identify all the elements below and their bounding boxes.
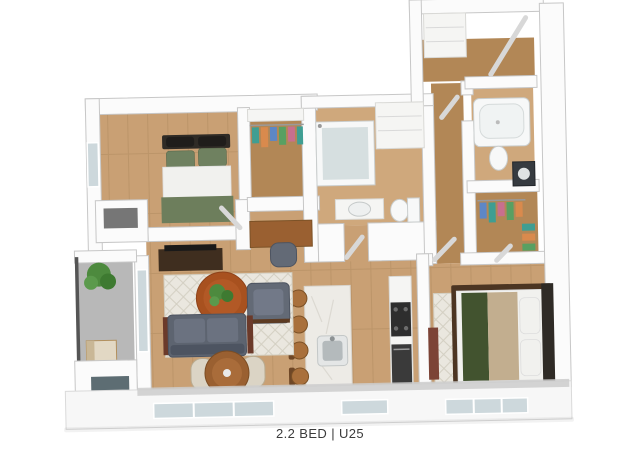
wall-bed1-south — [148, 226, 248, 242]
stove — [391, 302, 412, 336]
bed-2-pillow — [519, 297, 540, 333]
hanging-clothes — [522, 243, 535, 250]
sofa-wood-arm — [247, 315, 254, 353]
hanging-clothes — [522, 223, 535, 230]
wall-bath1-south-a — [318, 223, 345, 262]
hanging-clothes — [515, 202, 522, 217]
facade-window — [342, 400, 388, 415]
bed-2-headboard — [541, 283, 555, 387]
hanging-clothes — [261, 127, 268, 147]
hanging-clothes — [270, 127, 277, 141]
bathtub-basin — [479, 104, 524, 139]
bed-2-green-runner — [461, 293, 489, 382]
sofa-cushion — [207, 318, 238, 343]
vanity-1-sink — [348, 202, 370, 216]
shower-glass — [322, 127, 369, 180]
wall-balcony-top — [74, 250, 136, 263]
media-console — [158, 248, 222, 271]
hanging-clothes — [488, 202, 495, 222]
floorplan-canvas: 2.2 BED | U25 — [0, 0, 640, 453]
tv — [164, 244, 216, 251]
facade-window — [446, 398, 528, 415]
bed-1-dark-pillow — [198, 136, 226, 147]
hanging-clothes — [252, 127, 259, 143]
closet-1-floor — [247, 108, 305, 201]
toilet-2 — [489, 146, 507, 170]
sofa-cushion — [174, 318, 205, 343]
bedroom-1-window — [87, 143, 99, 187]
bar-stool — [291, 368, 308, 385]
sofa — [163, 313, 254, 357]
hanging-clothes — [288, 127, 295, 142]
storage-closet-interior — [104, 208, 138, 229]
bedroom-2-dresser — [428, 328, 439, 380]
wall-entry-bath2 — [465, 75, 537, 89]
closet-1-shelf — [247, 108, 303, 121]
bed-1-green-pillow — [198, 148, 226, 167]
hanging-clothes — [522, 233, 535, 240]
hanging-clothes — [297, 126, 303, 144]
bed-1-duvet — [163, 166, 232, 201]
armchair — [247, 283, 290, 324]
wall-entry-north — [409, 0, 543, 14]
wall-entry-west — [409, 0, 423, 106]
hanging-clothes — [506, 202, 513, 220]
island-sink-basin — [322, 341, 342, 361]
closet-2-rod — [477, 200, 525, 201]
armchair-cushion — [253, 289, 284, 316]
hanging-clothes — [279, 127, 286, 145]
balcony-door-glass — [137, 270, 149, 352]
facade-window — [154, 401, 274, 419]
laundry-cabinet — [375, 102, 424, 149]
toilet-1-tank — [407, 198, 420, 222]
plan-caption: 2.2 BED | U25 — [0, 426, 640, 441]
kitchen — [287, 276, 413, 393]
wall-bed1-closet1 — [237, 107, 251, 205]
hanging-clothes — [497, 202, 504, 216]
floorplan-render — [0, 0, 640, 453]
toilet-1 — [390, 199, 408, 221]
entry-cabinet — [423, 13, 466, 58]
laundry-closet — [375, 102, 424, 149]
bed-2-duvet — [487, 292, 519, 381]
hanging-clothes — [479, 203, 486, 219]
bed-1-dark-pillow — [166, 137, 194, 148]
floor-plan — [55, 0, 574, 432]
bed-2-pillow — [520, 339, 541, 375]
office-chair — [270, 242, 296, 267]
